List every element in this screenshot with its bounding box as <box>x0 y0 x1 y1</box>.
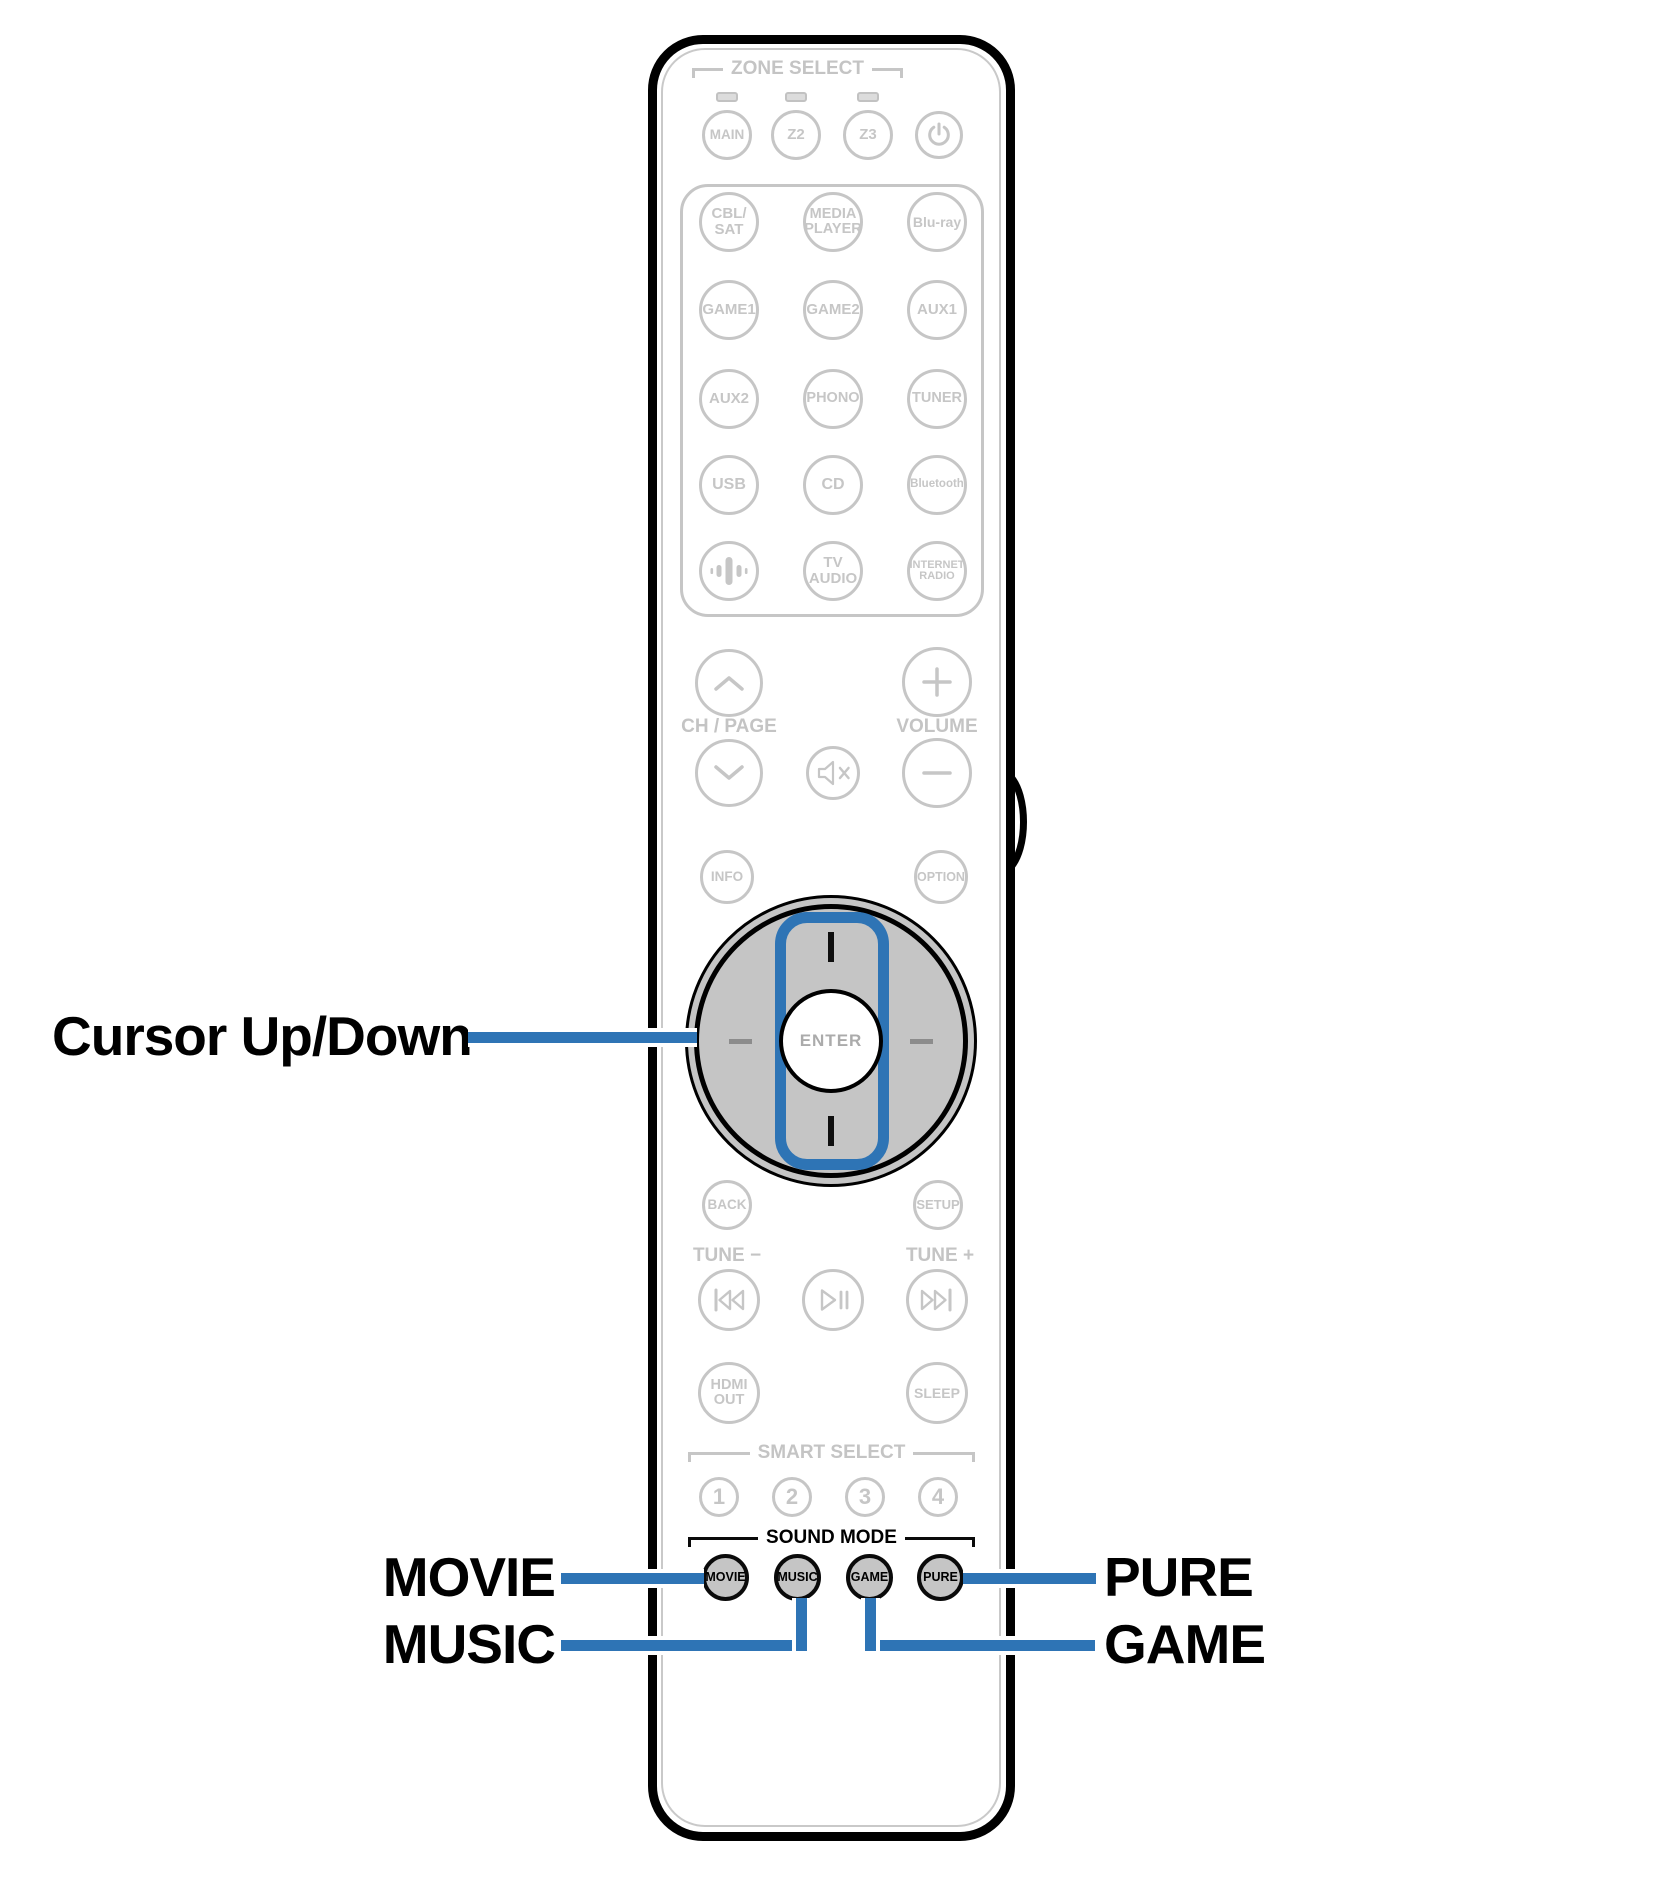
chevron-up-icon <box>711 673 747 693</box>
volume-down-button[interactable] <box>902 738 972 808</box>
aux1-button[interactable]: AUX1 <box>907 280 967 340</box>
zone2-button[interactable]: Z2 <box>771 110 821 160</box>
callout-line-pure <box>963 1569 1096 1588</box>
option-label: OPTION <box>917 871 965 884</box>
bracket-tick <box>692 68 695 78</box>
enter-button[interactable]: ENTER <box>779 989 883 1093</box>
aux2-label: AUX2 <box>709 391 749 407</box>
cursor-up-mark <box>828 932 834 962</box>
info-label: INFO <box>711 870 743 884</box>
channel-down-button[interactable] <box>695 739 763 807</box>
callout-cursor-up-down: Cursor Up/Down <box>52 1004 472 1068</box>
blu-ray-button[interactable]: Blu-ray <box>907 192 967 252</box>
aux1-label: AUX1 <box>917 302 957 318</box>
hdmi-out-label: HDMI OUT <box>710 1378 747 1408</box>
internet-radio-label: INTERNET RADIO <box>910 560 965 583</box>
aux2-button[interactable]: AUX2 <box>699 369 759 429</box>
internet-radio-button[interactable]: INTERNET RADIO <box>907 541 967 601</box>
zone-z2-led <box>785 92 807 102</box>
back-button[interactable]: BACK <box>702 1180 752 1230</box>
game2-label: GAME2 <box>806 302 859 318</box>
callout-game: GAME <box>1104 1612 1265 1676</box>
plus-icon <box>918 663 956 701</box>
callout-movie: MOVIE <box>300 1545 555 1609</box>
setup-button[interactable]: SETUP <box>913 1180 963 1230</box>
smart-select-2-button[interactable]: 2 <box>772 1477 812 1517</box>
play-pause-icon <box>813 1286 853 1314</box>
smart-select-3-button[interactable]: 3 <box>845 1477 885 1517</box>
sound-mode-label: SOUND MODE <box>758 1527 905 1549</box>
hdmi-out-button[interactable]: HDMI OUT <box>698 1362 760 1424</box>
bracket-line <box>905 1537 972 1540</box>
minus-icon <box>918 754 956 792</box>
smart-select-1-button[interactable]: 1 <box>699 1477 739 1517</box>
smart-select-1-label: 1 <box>713 1486 725 1509</box>
cursor-left-mark <box>729 1039 752 1044</box>
zone-z3-led <box>857 92 879 102</box>
bracket-tick <box>688 1537 691 1547</box>
bracket-line <box>691 1537 758 1540</box>
volume-label: VOLUME <box>867 716 1007 738</box>
zone-select-bracket: ZONE SELECT <box>692 57 903 81</box>
smart-select-4-label: 4 <box>932 1486 944 1509</box>
bracket-line <box>913 1452 972 1455</box>
zone2-label: Z2 <box>787 127 805 143</box>
game2-button[interactable]: GAME2 <box>803 280 863 340</box>
sleep-label: SLEEP <box>914 1386 960 1401</box>
smart-select-4-button[interactable]: 4 <box>918 1477 958 1517</box>
bracket-tick <box>972 1537 975 1547</box>
cursor-right-mark <box>910 1039 933 1044</box>
skip-forward-button[interactable] <box>906 1269 968 1331</box>
setup-label: SETUP <box>916 1198 959 1212</box>
game1-label: GAME1 <box>702 302 755 318</box>
game-button[interactable]: GAME <box>846 1554 893 1601</box>
bracket-tick <box>688 1452 691 1462</box>
tuner-button[interactable]: TUNER <box>907 369 967 429</box>
callout-line-game-v <box>861 1598 880 1651</box>
callout-line-music-v <box>792 1598 811 1651</box>
pure-button-label: PURE <box>923 1571 958 1584</box>
tuner-label: TUNER <box>912 391 962 406</box>
tv-audio-label: TV AUDIO <box>809 555 857 586</box>
speaker-audio-button[interactable] <box>699 541 759 601</box>
bracket-line <box>872 68 900 71</box>
movie-button-label: MOVIE <box>705 1571 745 1584</box>
music-button-label: MUSIC <box>777 1571 817 1584</box>
option-button[interactable]: OPTION <box>914 850 968 904</box>
bracket-line <box>691 1452 750 1455</box>
speaker-icon <box>709 554 749 588</box>
cursor-down-mark <box>828 1116 834 1146</box>
bluetooth-label: Bluetooth <box>910 479 964 491</box>
callout-line-game-h <box>865 1636 1095 1655</box>
chevron-down-icon <box>711 763 747 783</box>
enter-label: ENTER <box>800 1031 863 1051</box>
media-player-button[interactable]: MEDIA PLAYER <box>803 192 863 252</box>
movie-button[interactable]: MOVIE <box>702 1554 749 1601</box>
back-label: BACK <box>708 1198 747 1212</box>
game-button-label: GAME <box>851 1571 889 1584</box>
smart-select-2-label: 2 <box>786 1486 798 1509</box>
pure-button[interactable]: PURE <box>917 1554 964 1601</box>
zone3-button[interactable]: Z3 <box>843 110 893 160</box>
smart-select-label: SMART SELECT <box>750 1442 914 1464</box>
bracket-line <box>695 68 723 71</box>
power-icon <box>924 120 954 150</box>
mute-button[interactable] <box>806 746 860 800</box>
smart-select-bracket: SMART SELECT <box>688 1441 975 1465</box>
power-button[interactable] <box>915 111 963 159</box>
main-zone-button[interactable]: MAIN <box>702 110 752 160</box>
usb-label: USB <box>712 477 746 494</box>
tune-minus-label: TUNE − <box>657 1245 797 1267</box>
bracket-tick <box>900 68 903 78</box>
smart-select-3-label: 3 <box>859 1486 871 1509</box>
bracket-tick <box>972 1452 975 1462</box>
bluetooth-button[interactable]: Bluetooth <box>907 455 967 515</box>
callout-line-movie <box>561 1569 704 1588</box>
main-zone-label: MAIN <box>710 128 745 142</box>
cd-label: CD <box>821 477 844 494</box>
blu-ray-label: Blu-ray <box>913 215 961 230</box>
skip-back-button[interactable] <box>698 1269 760 1331</box>
zone-main-led <box>716 92 738 102</box>
info-button[interactable]: INFO <box>700 850 754 904</box>
music-button[interactable]: MUSIC <box>774 1554 821 1601</box>
skip-back-icon <box>709 1286 749 1314</box>
zone3-label: Z3 <box>859 127 877 143</box>
cd-button[interactable]: CD <box>803 455 863 515</box>
callout-line-music-h <box>561 1636 807 1655</box>
skip-forward-icon <box>917 1286 957 1314</box>
game1-button[interactable]: GAME1 <box>699 280 759 340</box>
cbl-sat-label: CBL/ SAT <box>712 206 747 237</box>
zone-select-label: ZONE SELECT <box>723 58 872 80</box>
play-pause-button[interactable] <box>802 1269 864 1331</box>
phono-label: PHONO <box>806 391 859 406</box>
callout-music: MUSIC <box>300 1612 555 1676</box>
media-player-label: MEDIA PLAYER <box>804 207 861 237</box>
phono-button[interactable]: PHONO <box>803 369 863 429</box>
sound-mode-bracket: SOUND MODE <box>688 1526 975 1550</box>
diagram-canvas: ZONE SELECT MAIN Z2 Z3 CBL/ SAT MEDIA PL… <box>0 0 1665 1878</box>
tune-plus-label: TUNE + <box>870 1245 1010 1267</box>
volume-up-button[interactable] <box>902 647 972 717</box>
channel-up-button[interactable] <box>695 649 763 717</box>
side-bump <box>1000 763 1042 881</box>
sleep-button[interactable]: SLEEP <box>906 1362 968 1424</box>
channel-page-label: CH / PAGE <box>659 716 799 738</box>
tv-audio-button[interactable]: TV AUDIO <box>803 541 863 601</box>
callout-pure: PURE <box>1104 1545 1253 1609</box>
cbl-sat-button[interactable]: CBL/ SAT <box>699 192 759 252</box>
usb-button[interactable]: USB <box>699 455 759 515</box>
callout-line-cursor <box>468 1028 697 1047</box>
mute-icon <box>815 760 851 786</box>
